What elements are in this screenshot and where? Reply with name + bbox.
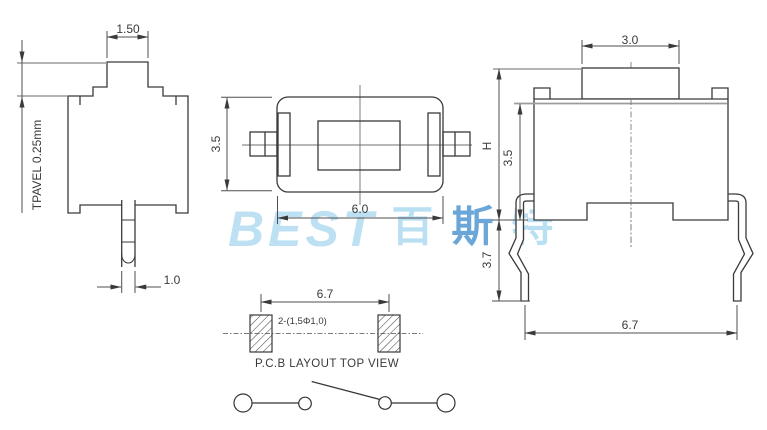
- front-body-outline: [68, 62, 188, 213]
- dim-top-body-width: 6.0: [352, 202, 369, 216]
- pcb-pad-right: [378, 315, 400, 352]
- top-pin-right: [443, 132, 470, 156]
- pcb-layout: 6.7 2-(1,5Φ1,0) P.C.B LAYOUT TOP VIEW: [223, 287, 423, 370]
- dim-side-lead-height: 3.7: [480, 251, 494, 268]
- side-tab-right: [712, 88, 728, 99]
- top-tab-right: [428, 113, 440, 176]
- dim-front-knob-width: 1.50: [116, 22, 140, 36]
- top-view: [242, 85, 472, 205]
- front-view: [68, 62, 188, 267]
- schematic-lever: [312, 382, 380, 400]
- dim-top-body-depth: 3.5: [209, 135, 223, 152]
- dim-pcb-hole-spec: 2-(1,5Φ1,0): [278, 316, 327, 327]
- dim-side-overall-height: H: [480, 142, 494, 151]
- schematic-symbol: [234, 382, 455, 413]
- schematic-terminal-left: [234, 394, 252, 412]
- dim-side-body-height: 3.5: [501, 149, 515, 166]
- dim-front-travel: TPAVEL 0.25mm: [30, 120, 44, 210]
- dim-side-lead-span: 6.7: [622, 318, 639, 332]
- top-button: [318, 121, 400, 170]
- pcb-pad-left: [250, 315, 272, 352]
- schematic-contact-left: [299, 397, 312, 410]
- top-view-dimensions: [221, 97, 443, 224]
- side-button: [582, 68, 679, 99]
- dim-side-knob-width: 3.0: [622, 33, 639, 47]
- schematic-terminal-right: [437, 394, 455, 412]
- front-pin-mask: [122, 200, 134, 266]
- side-view: [509, 62, 753, 301]
- dim-front-pin-width: 1.0: [164, 273, 181, 287]
- pcb-caption: P.C.B LAYOUT TOP VIEW: [255, 358, 399, 370]
- technical-drawing: 1.50 TPAVEL 0.25mm 1.0 3.5 6.0: [0, 0, 767, 430]
- side-leg-left: [509, 194, 537, 301]
- top-pin-left: [250, 132, 277, 156]
- drawing-canvas: BEST 百 斯 特: [0, 0, 767, 430]
- side-leg-right: [725, 194, 753, 301]
- top-tab-left: [278, 113, 290, 176]
- schematic-contact-right: [379, 397, 392, 410]
- side-tab-left: [534, 88, 550, 99]
- dim-pcb-pad-pitch: 6.7: [317, 287, 334, 301]
